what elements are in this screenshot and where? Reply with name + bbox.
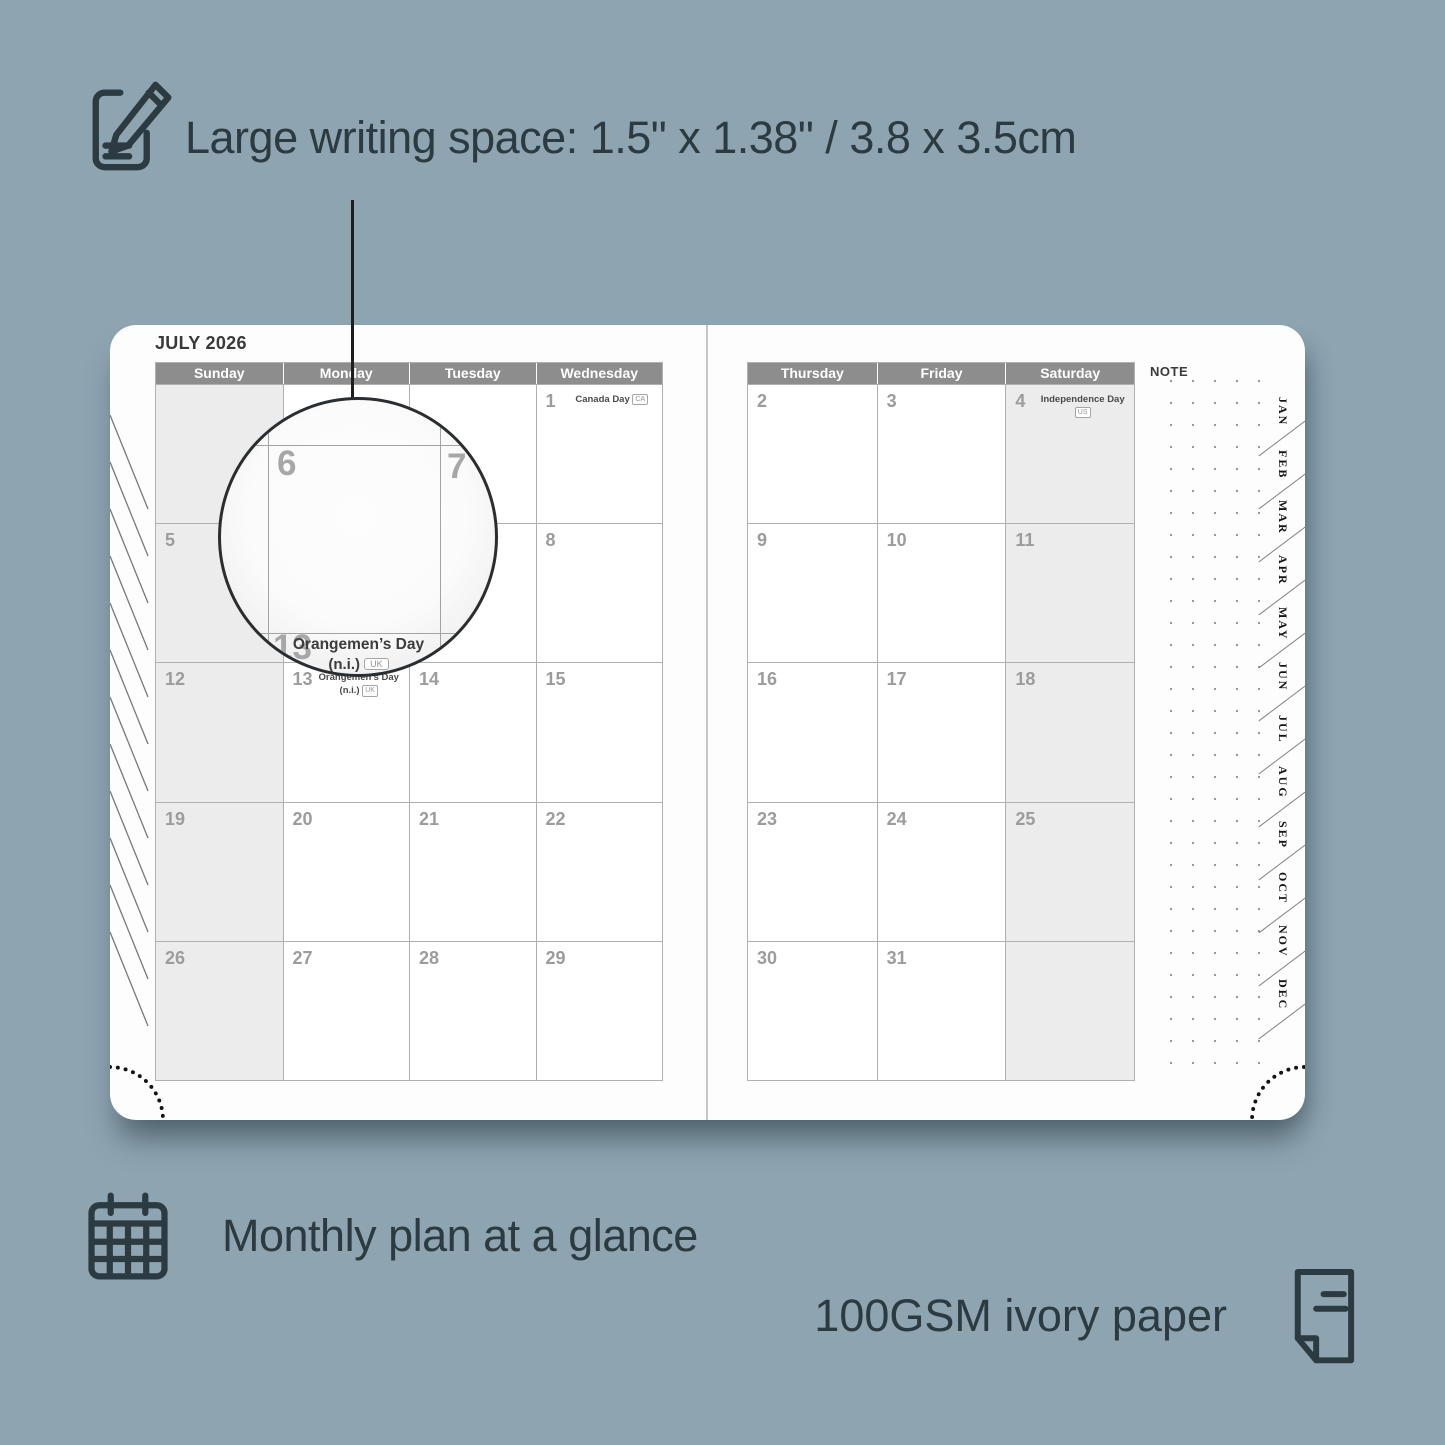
month-tab-jan: JAN (1260, 385, 1305, 438)
feature-paper-label: 100GSM ivory paper (814, 1290, 1227, 1342)
day-number: 25 (1015, 809, 1035, 830)
page-spine (706, 325, 708, 1120)
magnified-holiday-badge: UK (364, 658, 389, 670)
calendar-day-cell: 16 (748, 662, 877, 801)
calendar-day-cell: 23 (748, 802, 877, 941)
month-title: JULY 2026 (155, 333, 247, 354)
calendar-day-cell: 2 (748, 384, 877, 523)
calendar-day-cell: 3 (877, 384, 1006, 523)
day-number: 21 (419, 809, 439, 830)
calendar-day-cell: 11 (1005, 523, 1134, 662)
calendar-day-cell: 15 (536, 662, 663, 801)
month-tab-oct: OCT (1260, 862, 1305, 915)
product-image: Large writing space: 1.5" x 1.38" / 3.8 … (0, 0, 1445, 1445)
month-tab-jul: JUL (1260, 703, 1305, 756)
magnified-grid-line (268, 400, 269, 674)
calendar-day-cell: 29 (536, 941, 663, 1080)
magnified-day-7: 7 (447, 447, 466, 487)
magnified-holiday-ni: (n.i.) (328, 656, 360, 673)
calendar-day-cell: 1Canada Day CA (536, 384, 663, 523)
callout-line (351, 200, 354, 401)
holiday-label: Independence Day US (1034, 394, 1131, 420)
right-calendar-grid: ThursdayFridaySaturday234Independence Da… (747, 362, 1135, 1081)
calendar-day-cell: 26 (156, 941, 283, 1080)
day-number: 31 (887, 948, 907, 969)
day-number: 11 (1015, 530, 1034, 551)
month-tab-label: DEC (1275, 979, 1290, 1010)
month-tab-label: JAN (1275, 397, 1290, 426)
calendar-day-cell: 4Independence Day US (1005, 384, 1134, 523)
day-number: 5 (165, 530, 175, 551)
month-tab-nov: NOV (1260, 915, 1305, 968)
calendar-day-cell: 25 (1005, 802, 1134, 941)
day-number: 30 (757, 948, 777, 969)
calendar-day-cell: 12 (156, 662, 283, 801)
calendar-day-cell: 21 (409, 802, 536, 941)
day-number: 28 (419, 948, 439, 969)
month-tab-mar: MAR (1260, 491, 1305, 544)
day-number: 26 (165, 948, 185, 969)
month-tab-label: SEP (1275, 821, 1290, 849)
day-number: 2 (757, 391, 767, 412)
holiday-label: Canada Day CA (565, 394, 660, 407)
month-tab-may: MAY (1260, 597, 1305, 650)
calendar-day-cell: 18 (1005, 662, 1134, 801)
day-number: 22 (546, 809, 566, 830)
calendar-day-cell: 22 (536, 802, 663, 941)
month-tab-sep: SEP (1260, 809, 1305, 862)
writing-pencil-icon (84, 76, 182, 174)
calendar-day-cell: 13Orangemen’s Day (n.i.) UK (283, 662, 410, 801)
note-label: NOTE (1150, 364, 1188, 379)
month-tab-dec: DEC (1260, 968, 1305, 1021)
month-tab-label: APR (1275, 555, 1290, 586)
magnified-holiday-label: Orangemen’s Day (276, 636, 441, 654)
month-tab-label: FEB (1275, 450, 1290, 479)
calendar-day-cell: 20 (283, 802, 410, 941)
day-header-cell: Monday (283, 363, 410, 384)
calendar-day-cell: 9 (748, 523, 877, 662)
calendar-day-cell (1005, 941, 1134, 1080)
day-number: 29 (546, 948, 566, 969)
month-tab-label: OCT (1275, 872, 1290, 904)
calendar-day-cell: 30 (748, 941, 877, 1080)
month-tab-label: MAR (1275, 500, 1290, 535)
month-tab-label: MAY (1275, 607, 1290, 641)
paper-icon (1272, 1262, 1364, 1374)
day-header-cell: Tuesday (409, 363, 536, 384)
day-number: 12 (165, 669, 185, 690)
calendar-day-cell: 8 (536, 523, 663, 662)
month-tab-label: NOV (1275, 925, 1290, 958)
calendar-day-cell: 10 (877, 523, 1006, 662)
day-number: 24 (887, 809, 907, 830)
calendar-day-cell: 28 (409, 941, 536, 1080)
magnified-grid-line (221, 633, 495, 634)
month-tab-label: JUN (1275, 662, 1290, 691)
day-number: 23 (757, 809, 777, 830)
day-header-cell: Thursday (748, 363, 877, 384)
calendar-day-cell: 31 (877, 941, 1006, 1080)
holiday-badge: US (1075, 407, 1091, 418)
day-number: 16 (757, 669, 777, 690)
day-number: 1 (546, 391, 556, 412)
month-tabs: JANFEBMARAPRMAYJUNJULAUGSEPOCTNOVDEC (1260, 385, 1305, 1021)
note-area: NOTE (1150, 362, 1260, 1081)
magnifier-circle: 6 7 13 Orangemen’s Day (n.i.) UK (218, 397, 498, 677)
day-number: 3 (887, 391, 897, 412)
magnified-grid-line (440, 400, 441, 674)
day-header-cell: Saturday (1005, 363, 1134, 384)
calendar-day-cell: 17 (877, 662, 1006, 801)
day-number: 19 (165, 809, 185, 830)
day-header-cell: Friday (877, 363, 1006, 384)
day-number: 4 (1015, 391, 1025, 412)
day-number: 20 (293, 809, 313, 830)
day-number: 15 (546, 669, 566, 690)
holiday-badge: UK (362, 685, 378, 696)
calendar-day-cell: 14 (409, 662, 536, 801)
month-tab-apr: APR (1260, 544, 1305, 597)
calendar-day-cell: 24 (877, 802, 1006, 941)
calendar-day-cell: 27 (283, 941, 410, 1080)
page-edge-hatching-icon (110, 411, 150, 1031)
magnified-holiday-label2: (n.i.) UK (276, 656, 441, 673)
month-tab-label: AUG (1275, 766, 1290, 799)
day-number: 9 (757, 530, 767, 551)
calendar-icon (80, 1188, 176, 1284)
month-tab-aug: AUG (1260, 756, 1305, 809)
day-number: 18 (1015, 669, 1035, 690)
month-tab-label: JUL (1275, 715, 1290, 744)
month-tab-jun: JUN (1260, 650, 1305, 703)
feature-writing-space-label: Large writing space: 1.5" x 1.38" / 3.8 … (185, 112, 1076, 164)
day-header-cell: Sunday (156, 363, 283, 384)
magnified-grid-line (221, 445, 495, 446)
day-number: 8 (546, 530, 556, 551)
month-tab-feb: FEB (1260, 438, 1305, 491)
day-header-cell: Wednesday (536, 363, 663, 384)
calendar-day-cell: 19 (156, 802, 283, 941)
feature-monthly-plan-label: Monthly plan at a glance (222, 1210, 698, 1262)
day-number: 27 (293, 948, 313, 969)
day-number: 10 (887, 530, 907, 551)
magnified-day-6: 6 (277, 444, 296, 484)
holiday-badge: CA (632, 394, 648, 405)
day-number: 17 (887, 669, 907, 690)
